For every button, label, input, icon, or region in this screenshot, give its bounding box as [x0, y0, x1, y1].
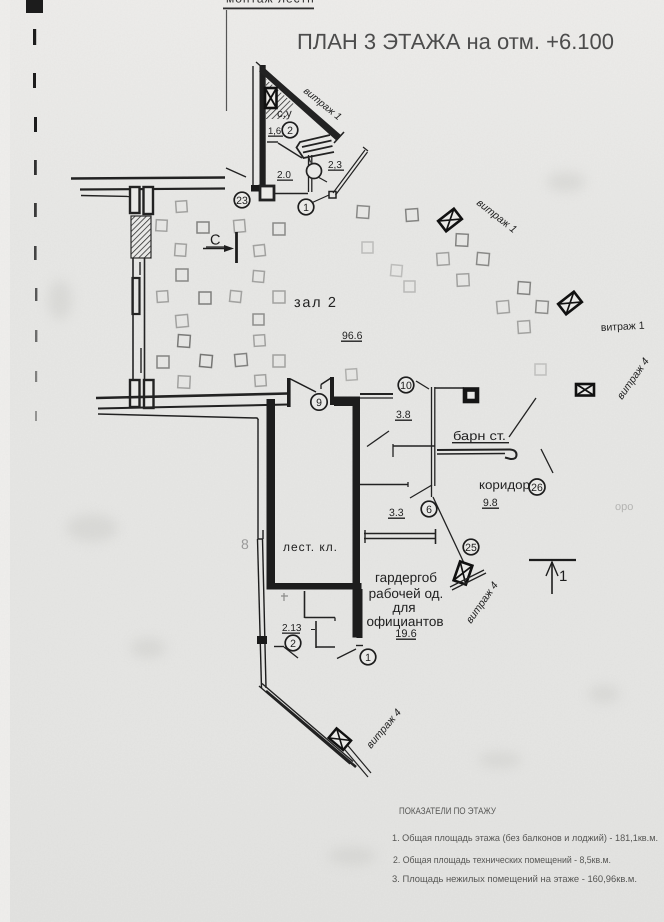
svg-text:19.6: 19.6 — [395, 628, 416, 640]
svg-text:витраж 1: витраж 1 — [601, 320, 645, 334]
svg-text:барн ст.: барн ст. — [453, 429, 506, 443]
svg-text:3. Площадь нежилых помещений: 3. Площадь нежилых помещений на этаже - … — [392, 874, 637, 885]
svg-text:3.3: 3.3 — [389, 507, 404, 519]
svg-text:9.8: 9.8 — [483, 497, 498, 509]
svg-text:25: 25 — [465, 542, 477, 554]
svg-text:1: 1 — [559, 568, 567, 585]
svg-text:96.6: 96.6 — [342, 330, 363, 342]
svg-text:1. Общая площадь этажа (без б: 1. Общая площадь этажа (без балконов и л… — [392, 833, 658, 844]
svg-text:2. Общая площадь технических: 2. Общая площадь технических помещений -… — [393, 855, 611, 866]
svg-text:1,6: 1,6 — [268, 126, 281, 137]
svg-text:рабочей од.: рабочей од. — [369, 586, 444, 601]
svg-text:1: 1 — [365, 652, 371, 664]
svg-text:гардергоб: гардергоб — [375, 570, 437, 585]
svg-text:коридор: коридор — [479, 478, 530, 492]
svg-text:для: для — [392, 600, 415, 615]
svg-text:23: 23 — [236, 195, 248, 207]
svg-text:зал 2: зал 2 — [294, 295, 336, 311]
svg-text:2: 2 — [290, 638, 296, 650]
svg-text:С: С — [210, 233, 220, 249]
svg-text:2: 2 — [287, 125, 293, 137]
svg-text:2,3: 2,3 — [328, 160, 342, 171]
svg-text:8: 8 — [241, 536, 249, 552]
svg-text:2.0: 2.0 — [277, 170, 291, 181]
svg-text:26: 26 — [531, 482, 543, 494]
svg-text:ПЛАН 3 ЭТАЖА на отм. +6.100: ПЛАН 3 ЭТАЖА на отм. +6.100 — [297, 29, 614, 54]
svg-text:ПОКАЗАТЕЛИ ПО ЭТАЖУ: ПОКАЗАТЕЛИ ПО ЭТАЖУ — [399, 806, 497, 817]
svg-text:оро: оро — [615, 501, 633, 513]
svg-text:лест. кл.: лест. кл. — [283, 540, 338, 554]
svg-text:2.13: 2.13 — [282, 623, 302, 634]
svg-text:6: 6 — [426, 504, 432, 516]
svg-text:монтаж лестн: монтаж лестн — [226, 0, 315, 6]
svg-text:с.у: с.у — [277, 108, 292, 120]
svg-text:1: 1 — [303, 202, 309, 214]
svg-text:3.8: 3.8 — [396, 409, 411, 421]
svg-text:официантов: официантов — [366, 614, 443, 629]
svg-text:9: 9 — [316, 397, 322, 409]
svg-text:10: 10 — [400, 380, 412, 392]
